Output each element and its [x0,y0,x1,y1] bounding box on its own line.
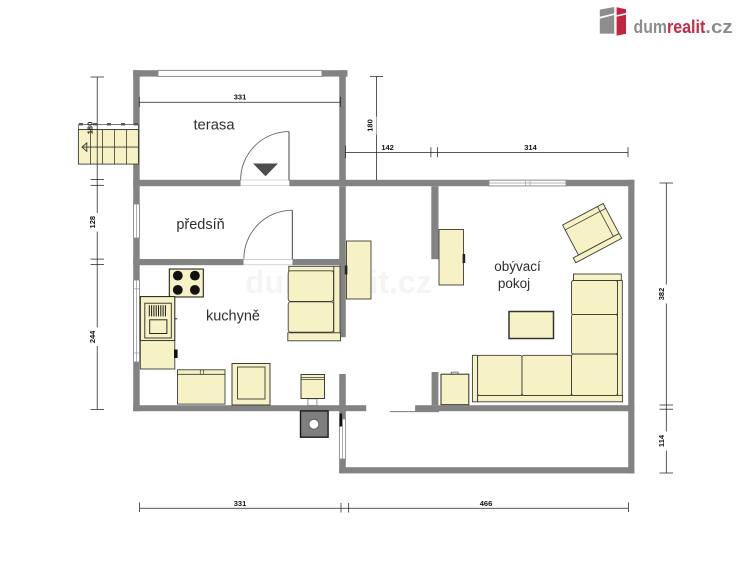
svg-text:realit: realit [667,17,705,37]
svg-text:114: 114 [657,434,666,447]
svg-text:382: 382 [657,288,666,301]
svg-text:314: 314 [524,143,537,152]
svg-text:331: 331 [234,499,247,508]
svg-text:dum: dum [634,17,668,37]
svg-text:.cz: .cz [705,17,732,37]
svg-text:180: 180 [85,122,94,135]
svg-text:466: 466 [480,499,493,508]
svg-text:obývací: obývací [494,259,541,274]
svg-text:předsíň: předsíň [176,217,224,233]
svg-text:terasa: terasa [193,118,235,134]
svg-text:142: 142 [381,143,394,152]
svg-text:244: 244 [88,330,97,343]
svg-text:pokoj: pokoj [498,276,530,291]
svg-text:kuchyně: kuchyně [206,309,260,325]
svg-text:128: 128 [88,216,97,229]
svg-text:331: 331 [234,93,247,102]
svg-text:180: 180 [365,119,374,132]
